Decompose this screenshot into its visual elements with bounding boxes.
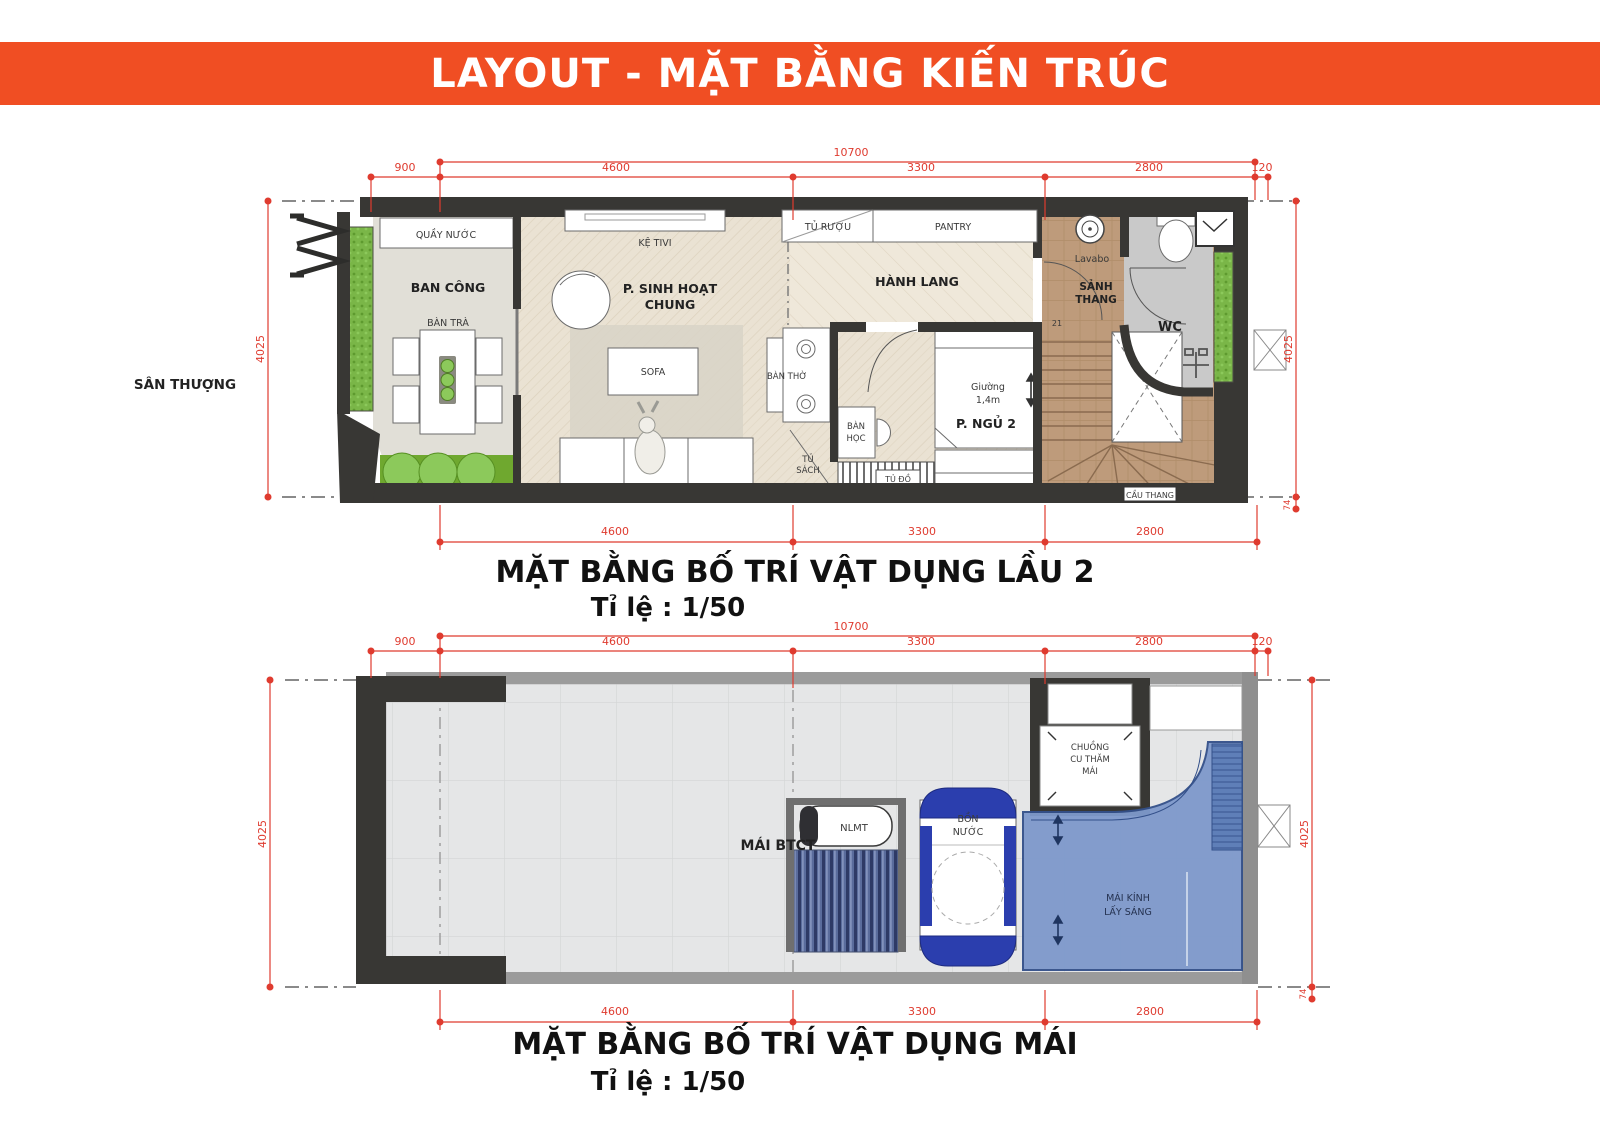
svg-text:3300: 3300 xyxy=(907,161,935,174)
svg-text:4600: 4600 xyxy=(601,1005,629,1018)
label-giuong: Giường xyxy=(971,382,1005,393)
svg-text:4600: 4600 xyxy=(601,525,629,538)
floor-plan-drawing: QUẦY NƯỚC BAN CÔNG BÀN TRÀ KỆ TIVI P. SI… xyxy=(0,0,1600,1131)
chair[interactable] xyxy=(476,386,502,423)
label-stair-count: 21 xyxy=(1052,319,1062,328)
svg-text:NƯỚC: NƯỚC xyxy=(953,826,984,838)
svg-text:4600: 4600 xyxy=(602,635,630,648)
svg-text:900: 900 xyxy=(395,161,416,174)
label-p-ngu-2: P. NGỦ 2 xyxy=(956,415,1016,431)
wc-window[interactable] xyxy=(1196,211,1234,246)
svg-text:4025: 4025 xyxy=(1298,820,1311,848)
floor2-plan: QUẦY NƯỚC BAN CÔNG BÀN TRÀ KỆ TIVI P. SI… xyxy=(134,146,1300,623)
planter-strip-right xyxy=(1214,252,1233,382)
label-pantry: PANTRY xyxy=(935,222,972,233)
label-bon-nuoc: BỒN xyxy=(957,812,978,825)
label-lavabo: Lavabo xyxy=(1075,254,1110,265)
armchair[interactable] xyxy=(552,271,610,329)
solar-heater: NLMT xyxy=(786,798,906,952)
svg-text:2800: 2800 xyxy=(1136,1005,1164,1018)
label-ban-tho: BÀN THỜ xyxy=(767,370,807,382)
svg-text:HỌC: HỌC xyxy=(846,434,865,444)
dim-10700: 10700 xyxy=(834,146,869,159)
label-sanh-thang: SẢNH xyxy=(1079,279,1112,293)
page: LAYOUT - MẶT BẰNG KIẾN TRÚC xyxy=(0,0,1600,1131)
label-mai-btct: MÁI BTCT xyxy=(741,837,816,854)
svg-text:3300: 3300 xyxy=(908,1005,936,1018)
label-ban-hoc: BÀN xyxy=(847,420,865,432)
label-quay-nuoc: QUẦY NƯỚC xyxy=(416,228,477,241)
chair[interactable] xyxy=(476,338,502,375)
label-wc: WC xyxy=(1158,320,1182,335)
svg-text:10700: 10700 xyxy=(834,620,869,633)
floor2-scale: Tỉ lệ : 1/50 xyxy=(591,593,746,623)
svg-text:4025: 4025 xyxy=(1282,335,1295,363)
awning-zigzag xyxy=(290,216,342,275)
label-hanh-lang: HÀNH LANG xyxy=(875,274,959,289)
svg-text:2800: 2800 xyxy=(1135,635,1163,648)
label-nlmt: NLMT xyxy=(840,823,869,834)
svg-text:4600: 4600 xyxy=(602,161,630,174)
parapet-band xyxy=(1150,686,1242,730)
svg-text:CHUNG: CHUNG xyxy=(645,297,696,312)
label-ke-tivi: KỆ TIVI xyxy=(638,237,671,249)
svg-text:3300: 3300 xyxy=(908,525,936,538)
planter-strip-left xyxy=(347,227,373,411)
svg-text:4025: 4025 xyxy=(254,335,267,363)
label-sinh-hoat: P. SINH HOẠT xyxy=(623,281,718,296)
svg-text:2800: 2800 xyxy=(1135,161,1163,174)
label-tu-sach: TỦ xyxy=(801,453,813,465)
label-sofa: SOFA xyxy=(641,367,666,378)
label-ban-tra: BÀN TRÀ xyxy=(427,317,469,329)
roof-scale: Tỉ lệ : 1/50 xyxy=(591,1067,746,1097)
svg-text:4025: 4025 xyxy=(256,820,269,848)
toilet[interactable] xyxy=(1159,220,1193,262)
roof-caption: MẶT BẰNG BỐ TRÍ VẬT DỤNG MÁI xyxy=(512,1021,1077,1062)
label-mai-kinh: MÁI KÍNH xyxy=(1106,892,1150,904)
svg-text:SÁCH: SÁCH xyxy=(796,464,820,476)
chair[interactable] xyxy=(393,386,419,423)
person-figure xyxy=(635,430,665,474)
floor2-caption: MẶT BẰNG BỐ TRÍ VẬT DỤNG LẦU 2 xyxy=(495,549,1094,590)
svg-text:THANG: THANG xyxy=(1075,294,1116,306)
svg-text:1,4m: 1,4m xyxy=(976,395,1000,406)
solar-tubes xyxy=(794,850,898,952)
label-san-thuong: SÂN THƯỢNG xyxy=(134,376,236,393)
svg-text:74: 74 xyxy=(1299,989,1309,1000)
svg-text:74: 74 xyxy=(1283,500,1293,511)
svg-text:2800: 2800 xyxy=(1136,525,1164,538)
svg-text:MÁI: MÁI xyxy=(1082,765,1098,777)
water-tank: BỒN NƯỚC xyxy=(920,788,1016,966)
svg-text:3300: 3300 xyxy=(907,635,935,648)
svg-text:LẤY SÁNG: LẤY SÁNG xyxy=(1104,906,1152,918)
study-desk[interactable] xyxy=(838,407,875,458)
svg-text:900: 900 xyxy=(395,635,416,648)
skylight-slats xyxy=(1212,744,1242,850)
roof-plan: NLMT BỒN NƯỚC xyxy=(256,620,1330,1097)
chair[interactable] xyxy=(393,338,419,375)
label-ban-cong: BAN CÔNG xyxy=(411,280,486,295)
label-tu-ruou: TỦ RƯỢU xyxy=(804,221,851,233)
svg-text:CU THĂM: CU THĂM xyxy=(1070,753,1110,765)
